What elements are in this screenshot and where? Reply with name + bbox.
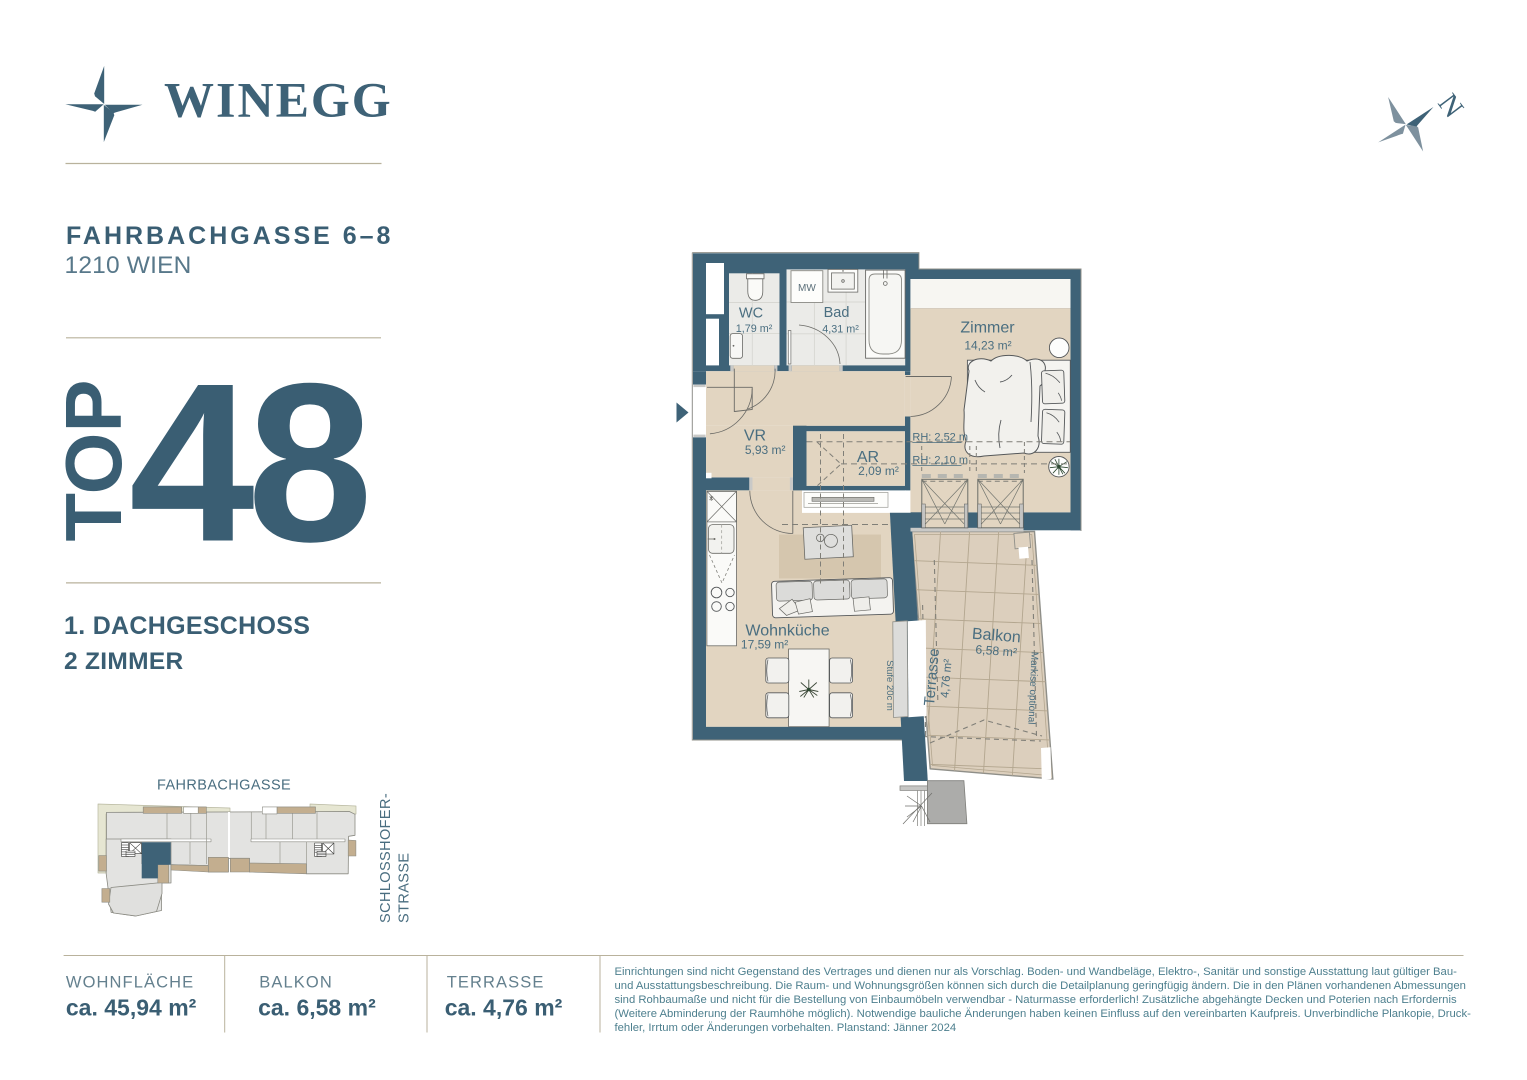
svg-text:2 ZIMMER: 2 ZIMMER <box>64 648 183 675</box>
svg-text:WINEGG: WINEGG <box>164 72 393 128</box>
svg-text:1210 WIEN: 1210 WIEN <box>65 252 192 279</box>
svg-text:FAHRBACHGASSE: FAHRBACHGASSE <box>157 778 291 794</box>
svg-text:ca. 6,58 m²: ca. 6,58 m² <box>258 995 376 1021</box>
svg-text:FAHRBACHGASSE 6–8: FAHRBACHGASSE 6–8 <box>66 222 393 250</box>
svg-text:5,93 m²: 5,93 m² <box>745 443 786 457</box>
svg-text:sind Rohbaumaße und nicht für: sind Rohbaumaße und nicht für die Bestel… <box>615 994 1457 1006</box>
svg-text:und Ausstattungsbeschreibung.: und Ausstattungsbeschreibung. Die Raum- … <box>615 980 1466 992</box>
svg-text:SCHLOSSHOFER-: SCHLOSSHOFER- <box>378 793 394 923</box>
svg-text:1. DACHGESCHOSS: 1. DACHGESCHOSS <box>64 612 310 640</box>
svg-text:Bad: Bad <box>824 305 850 321</box>
svg-text:RH: 2,52 m: RH: 2,52 m <box>912 432 968 444</box>
svg-text:N: N <box>1431 88 1469 124</box>
svg-text:TERRASSE: TERRASSE <box>447 974 545 992</box>
svg-text:Einrichtungen sind nicht Gegen: Einrichtungen sind nicht Gegenstand des … <box>615 966 1458 978</box>
svg-text:fehler, Irrtum oder Änderungen: fehler, Irrtum oder Änderungen vorbehalt… <box>615 1022 957 1034</box>
svg-text:Zimmer: Zimmer <box>960 320 1015 337</box>
svg-text:RH: 2,10 m: RH: 2,10 m <box>912 454 968 466</box>
svg-text:14,23 m²: 14,23 m² <box>964 339 1011 353</box>
svg-text:BALKON: BALKON <box>259 974 333 992</box>
svg-text:4,31 m²: 4,31 m² <box>822 324 859 336</box>
svg-text:WOHNFLÄCHE: WOHNFLÄCHE <box>66 974 194 992</box>
svg-text:TOP: TOP <box>49 380 138 542</box>
svg-text:2,09 m²: 2,09 m² <box>858 464 899 478</box>
svg-text:ca. 4,76 m²: ca. 4,76 m² <box>445 995 563 1021</box>
svg-text:1,79 m²: 1,79 m² <box>736 323 773 335</box>
svg-text:ca. 45,94 m²: ca. 45,94 m² <box>66 995 197 1021</box>
svg-text:MW: MW <box>798 283 816 294</box>
svg-text:Stufe 20c m: Stufe 20c m <box>884 660 895 711</box>
svg-text:(Weitere Abminderung der Raumh: (Weitere Abminderung der Raumhöhe möglic… <box>615 1008 1472 1020</box>
svg-text:WC: WC <box>739 306 763 322</box>
svg-text:17,59 m²: 17,59 m² <box>741 638 788 652</box>
svg-text:48: 48 <box>129 336 366 589</box>
svg-text:STRASSE: STRASSE <box>397 853 413 924</box>
